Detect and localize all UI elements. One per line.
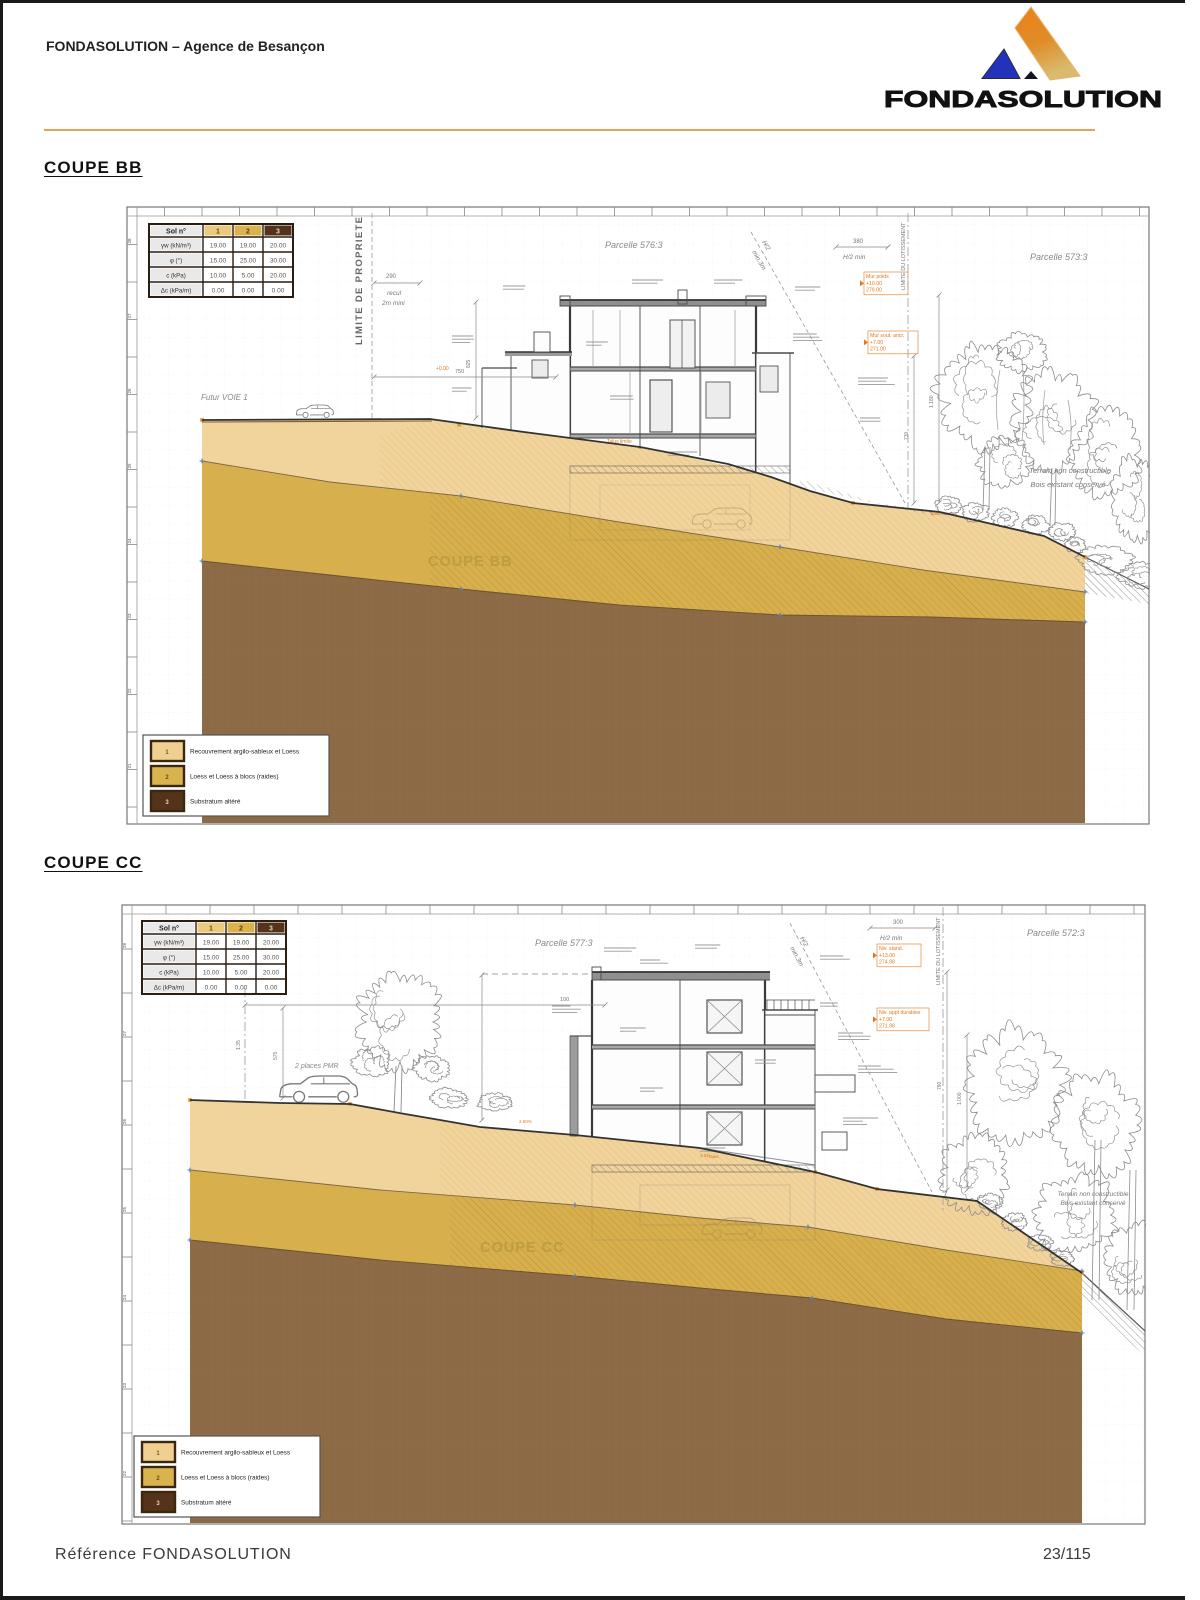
svg-text:Loess et Loess à blocs (raides: Loess et Loess à blocs (raides) xyxy=(181,1475,269,1482)
svg-text:0.00: 0.00 xyxy=(272,288,285,295)
svg-text:2m mini: 2m mini xyxy=(381,300,405,307)
svg-text:19.00: 19.00 xyxy=(240,243,257,250)
svg-text:φ (°): φ (°) xyxy=(163,955,175,962)
svg-text:20.00: 20.00 xyxy=(263,940,280,947)
svg-text:750: 750 xyxy=(455,369,464,375)
svg-text:730: 730 xyxy=(904,431,910,440)
svg-text:2 places PMR: 2 places PMR xyxy=(294,1063,339,1070)
svg-text:Mur poids: Mur poids xyxy=(866,274,889,280)
svg-text:825: 825 xyxy=(466,359,472,368)
svg-text:COUPE CC: COUPE CC xyxy=(480,1240,565,1256)
svg-text:5.00: 5.00 xyxy=(242,273,255,280)
svg-text:22: 22 xyxy=(122,1470,127,1476)
svg-text:φ (°): φ (°) xyxy=(170,258,182,265)
svg-text:10.00: 10.00 xyxy=(203,970,220,977)
svg-text:24: 24 xyxy=(122,1294,127,1300)
svg-text:30.00: 30.00 xyxy=(270,258,287,265)
svg-text:2.50%: 2.50% xyxy=(519,1119,532,1124)
svg-text:+13.00: +13.00 xyxy=(879,953,895,959)
svg-text:5.00: 5.00 xyxy=(235,970,248,977)
svg-text:Bois existant conservé: Bois existant conservé xyxy=(1060,1200,1125,1207)
svg-text:24: 24 xyxy=(127,538,132,544)
svg-text:1: 1 xyxy=(209,926,213,933)
svg-text:290: 290 xyxy=(386,274,397,280)
svg-text:H/2 min: H/2 min xyxy=(880,935,903,942)
svg-text:Niv. appt durables: Niv. appt durables xyxy=(879,1010,921,1016)
svg-text:γw (kN/m³): γw (kN/m³) xyxy=(154,940,184,947)
svg-text:Parcelle 577:3: Parcelle 577:3 xyxy=(535,938,593,948)
svg-text:Substratum altéré: Substratum altéré xyxy=(181,1500,232,1507)
svg-text:25.00: 25.00 xyxy=(240,258,257,265)
svg-text:0.00: 0.00 xyxy=(205,985,218,992)
svg-text:20.00: 20.00 xyxy=(270,243,287,250)
svg-text:790: 790 xyxy=(937,1081,943,1090)
svg-text:15.00: 15.00 xyxy=(203,955,220,962)
svg-text:Futur VOIE 1: Futur VOIE 1 xyxy=(201,393,248,402)
svg-text:271.00: 271.00 xyxy=(870,346,886,352)
svg-text:23: 23 xyxy=(122,1382,127,1388)
svg-text:100: 100 xyxy=(560,997,569,1003)
svg-text:26: 26 xyxy=(122,1118,127,1124)
svg-text:Terrain non constructible: Terrain non constructible xyxy=(1029,466,1111,475)
svg-text:Parcelle 576:3: Parcelle 576:3 xyxy=(605,240,663,250)
svg-text:10.00: 10.00 xyxy=(210,273,227,280)
svg-text:0.00: 0.00 xyxy=(265,985,278,992)
svg-text:3: 3 xyxy=(269,926,273,933)
svg-text:0.00: 0.00 xyxy=(235,985,248,992)
svg-text:575: 575 xyxy=(273,1051,279,1060)
svg-text:26: 26 xyxy=(127,388,132,394)
svg-text:3: 3 xyxy=(276,229,280,236)
svg-text:+7.00: +7.00 xyxy=(870,340,883,346)
svg-text:0.00: 0.00 xyxy=(212,288,225,295)
svg-text:Δc (kPa/m): Δc (kPa/m) xyxy=(154,985,185,992)
svg-text:2: 2 xyxy=(239,926,243,933)
svg-text:25.00: 25.00 xyxy=(233,955,250,962)
svg-text:+7.00: +7.00 xyxy=(879,1017,892,1023)
svg-text:LIMITE DU LOTISSEMENT: LIMITE DU LOTISSEMENT xyxy=(901,222,907,290)
svg-text:19.00: 19.00 xyxy=(210,243,227,250)
svg-text:28: 28 xyxy=(127,238,132,244)
svg-text:Parcelle 572:3: Parcelle 572:3 xyxy=(1027,928,1085,938)
svg-text:279.00: 279.00 xyxy=(866,287,882,293)
svg-text:Loess et Loess à blocs (raides: Loess et Loess à blocs (raides) xyxy=(190,774,278,781)
svg-text:30.00: 30.00 xyxy=(263,955,280,962)
svg-text:0.00: 0.00 xyxy=(242,288,255,295)
svg-text:21: 21 xyxy=(127,763,132,769)
svg-text:20.00: 20.00 xyxy=(263,970,280,977)
svg-text:19.00: 19.00 xyxy=(233,940,250,947)
svg-text:+0.00: +0.00 xyxy=(436,366,449,372)
svg-text:Sol n°: Sol n° xyxy=(159,925,179,933)
svg-text:γw (kN/m³): γw (kN/m³) xyxy=(161,243,191,250)
svg-text:LIMITE DU LOTISSEMENT: LIMITE DU LOTISSEMENT xyxy=(936,917,942,985)
svg-text:Bois existant conservé: Bois existant conservé xyxy=(1030,480,1105,489)
svg-text:23: 23 xyxy=(127,613,132,619)
svg-text:Recouvrement argilo-sableux et: Recouvrement argilo-sableux et Loess xyxy=(190,749,299,756)
svg-text:c (kPa): c (kPa) xyxy=(159,970,179,977)
svg-text:27: 27 xyxy=(127,313,132,319)
svg-text:1.35: 1.35 xyxy=(236,1040,242,1050)
svg-text:H/2 min: H/2 min xyxy=(843,254,866,261)
svg-text:1: 1 xyxy=(216,229,220,236)
svg-text:300: 300 xyxy=(893,920,904,926)
svg-text:20.00: 20.00 xyxy=(270,273,287,280)
svg-text:c (kPa): c (kPa) xyxy=(166,273,186,280)
svg-text:2: 2 xyxy=(246,229,250,236)
svg-text:27: 27 xyxy=(122,1030,127,1036)
svg-text:recul: recul xyxy=(387,290,402,297)
svg-text:Substratum altéré: Substratum altéré xyxy=(190,799,241,806)
svg-text:Parcelle 573:3: Parcelle 573:3 xyxy=(1030,252,1088,262)
svg-text:Niv. stand.: Niv. stand. xyxy=(879,946,903,952)
svg-text:Recouvrement argilo-sableux et: Recouvrement argilo-sableux et Loess xyxy=(181,1450,290,1457)
svg-text:Mur sout. ancr.: Mur sout. ancr. xyxy=(870,333,904,339)
svg-text:271.98: 271.98 xyxy=(879,1023,895,1029)
svg-text:274.98: 274.98 xyxy=(879,959,895,965)
svg-text:25: 25 xyxy=(122,1206,127,1212)
svg-text:1.180: 1.180 xyxy=(929,395,935,408)
svg-text:1.000: 1.000 xyxy=(957,1092,963,1105)
svg-text:Talus: Talus xyxy=(708,1154,719,1159)
svg-text:28: 28 xyxy=(122,942,127,948)
svg-text:380: 380 xyxy=(853,239,864,245)
svg-text:19.00: 19.00 xyxy=(203,940,220,947)
svg-text:25: 25 xyxy=(127,463,132,469)
svg-text:22: 22 xyxy=(127,688,132,694)
svg-text:COUPE BB: COUPE BB xyxy=(428,554,513,570)
svg-text:Sol n°: Sol n° xyxy=(166,228,186,236)
svg-text:+10.00: +10.00 xyxy=(866,281,882,287)
svg-text:LIMITE DE PROPRIETE: LIMITE DE PROPRIETE xyxy=(354,216,365,345)
svg-text:Δc (kPa/m): Δc (kPa/m) xyxy=(161,288,192,295)
svg-text:15.00: 15.00 xyxy=(210,258,227,265)
